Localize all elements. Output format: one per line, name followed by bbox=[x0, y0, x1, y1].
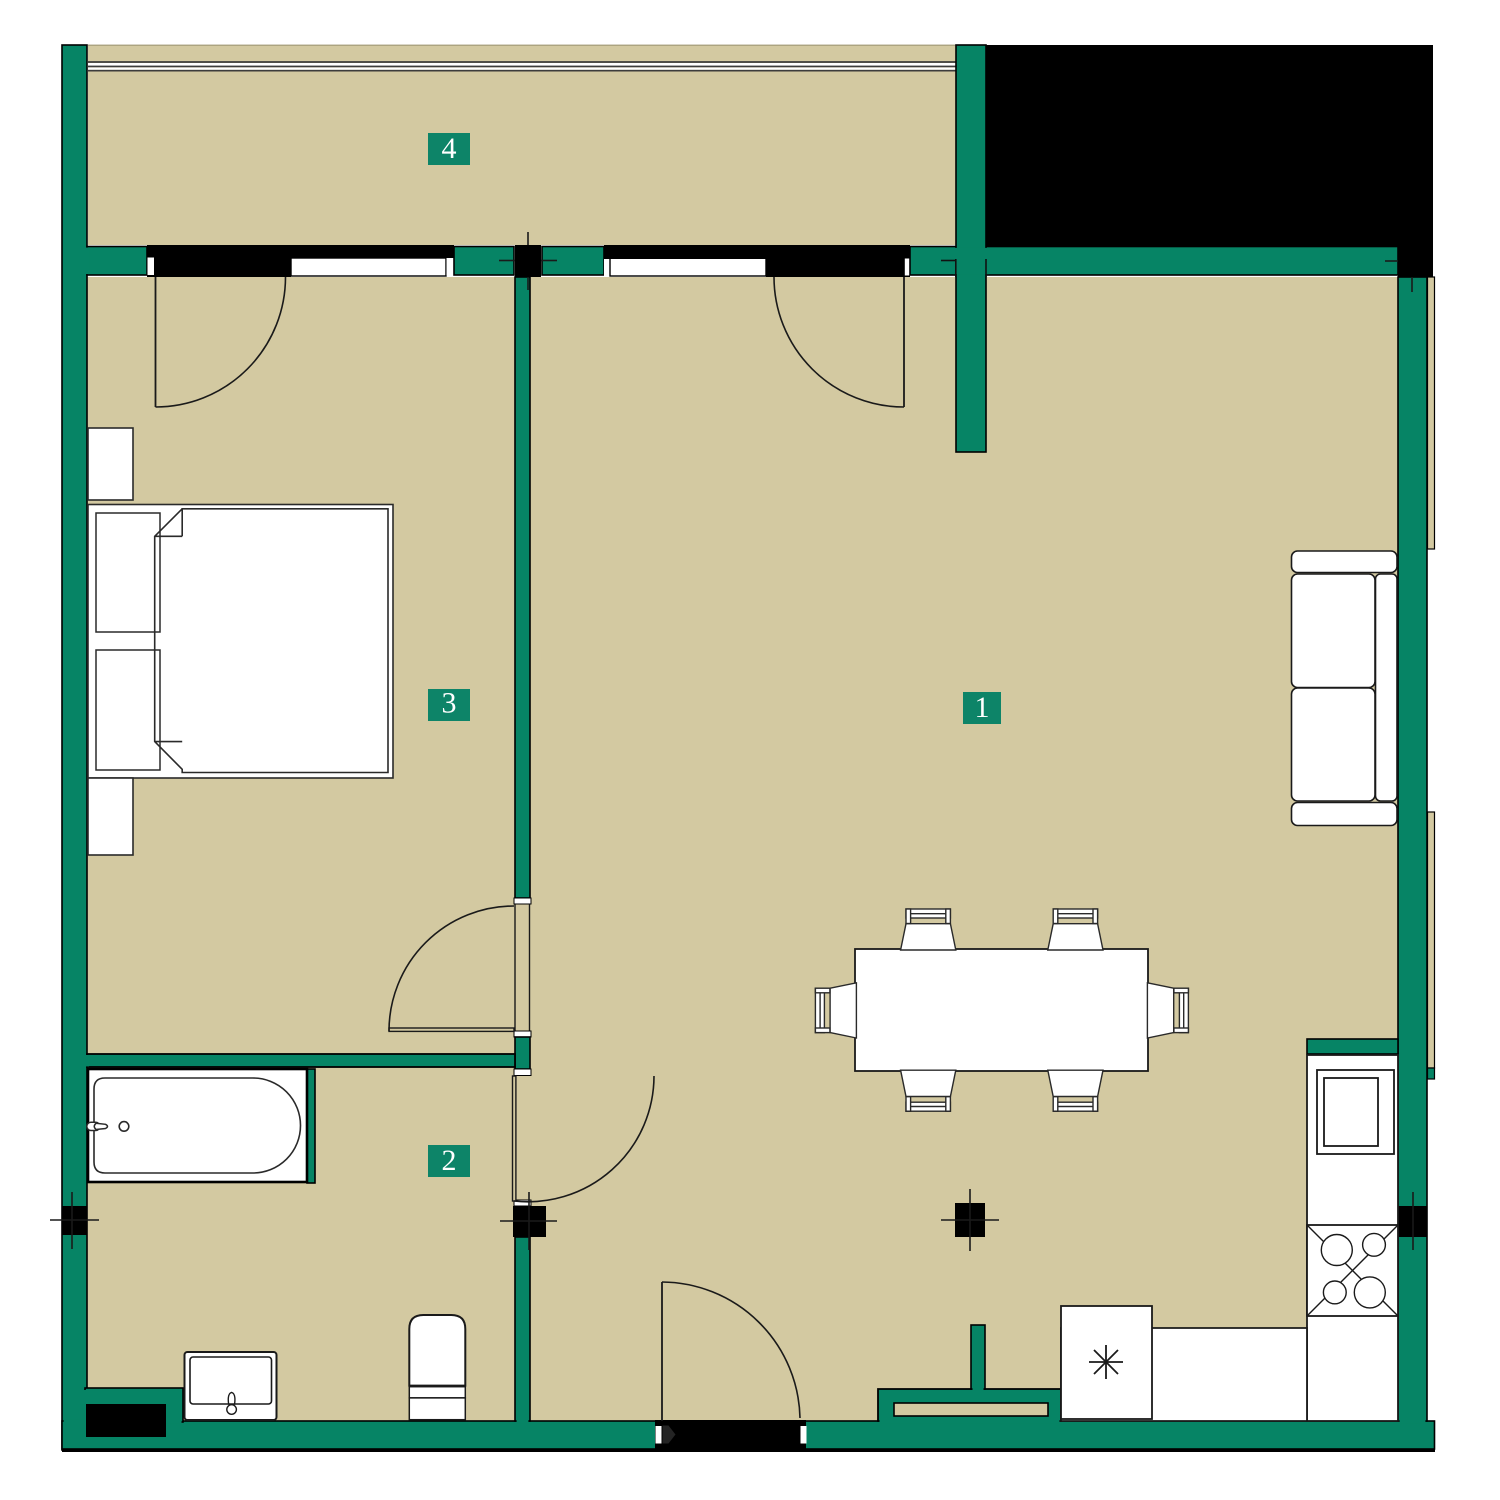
svg-text:1: 1 bbox=[975, 691, 990, 724]
svg-text:4: 4 bbox=[442, 132, 457, 165]
svg-text:3: 3 bbox=[442, 687, 457, 720]
svg-text:2: 2 bbox=[442, 1144, 457, 1177]
